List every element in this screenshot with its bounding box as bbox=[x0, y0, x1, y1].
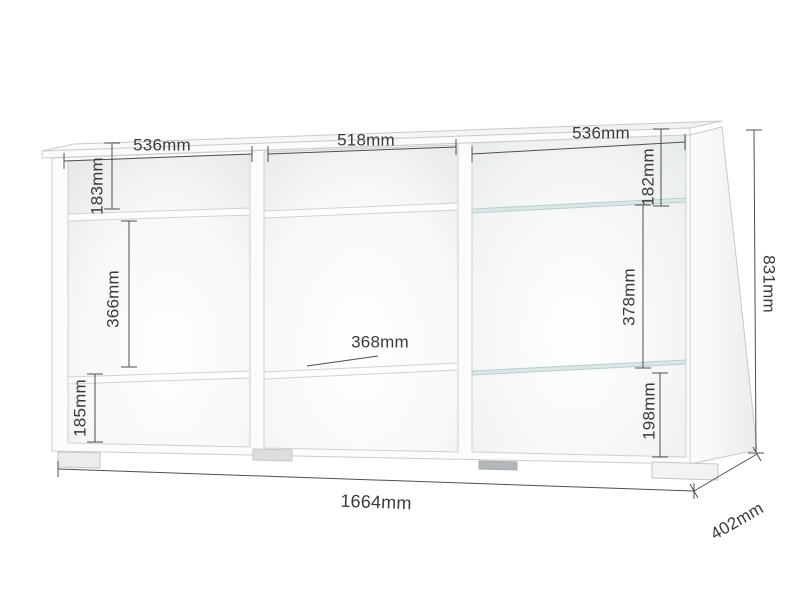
dim-left-top-height: 183mm bbox=[89, 157, 106, 215]
dim-overall-width: 1664mm bbox=[340, 492, 412, 512]
dim-middle-width: 518mm bbox=[337, 132, 395, 149]
dim-left-bottom-height: 185mm bbox=[72, 379, 89, 437]
dimension-diagram: 536mm 518mm 536mm 183mm 366mm 185mm 368m… bbox=[0, 0, 801, 600]
middle-compartment bbox=[264, 145, 458, 452]
foot-center-left bbox=[253, 449, 292, 461]
dim-middle-shelf: 368mm bbox=[351, 334, 409, 351]
dim-left-middle-height: 366mm bbox=[105, 270, 122, 328]
dim-overall-height: 831mm bbox=[761, 255, 778, 313]
dim-right-middle-height: 378mm bbox=[621, 268, 638, 326]
dim-right-bottom-height: 198mm bbox=[641, 382, 658, 440]
right-side-panel bbox=[690, 127, 757, 464]
dim-left-width: 536mm bbox=[133, 137, 191, 154]
foot-right bbox=[652, 462, 718, 480]
foot-center-right bbox=[479, 461, 517, 470]
foot-left bbox=[58, 452, 100, 468]
dim-right-width: 536mm bbox=[572, 125, 630, 142]
dim-right-top-height: 182mm bbox=[640, 148, 657, 206]
